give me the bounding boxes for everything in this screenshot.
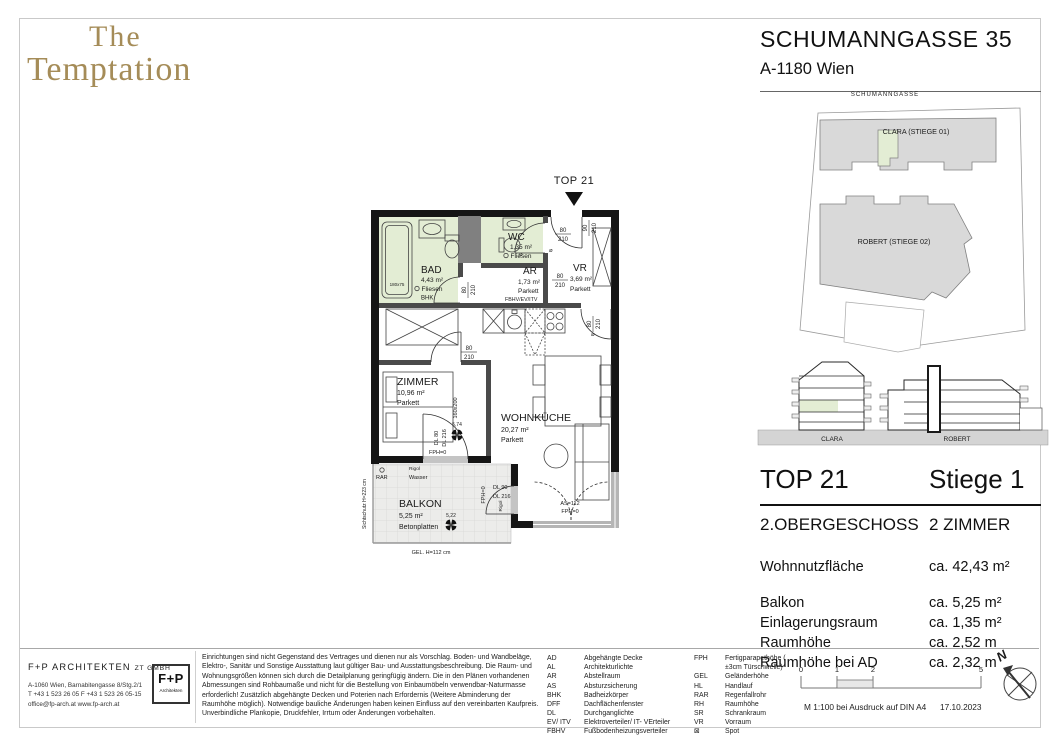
- plan-sheet: The Temptation SCHUMANNGASSE 35 A-1180 W…: [0, 0, 1060, 753]
- brand-line2: Temptation: [27, 53, 191, 88]
- bad-name: BAD: [421, 265, 442, 276]
- bed-size: 160x200: [453, 397, 459, 418]
- bad-note: BHK: [421, 296, 433, 302]
- ar-floor: Parkett: [518, 288, 539, 295]
- legend-abbr: AS: [547, 682, 584, 691]
- wohnkueche-name: WOHNKÜCHE: [501, 412, 571, 424]
- metric-row: Einlagerungsraum ca. 1,35 m²: [760, 615, 1041, 635]
- door-mark-icon: ⌀: [549, 248, 553, 254]
- unit-rooms-label: 2 ZIMMER: [929, 515, 1041, 535]
- scale-tick-5: 5: [979, 665, 983, 674]
- bad-area: 4,43 m²: [421, 277, 444, 284]
- architect-logo-text: F+P: [154, 671, 188, 686]
- compass-n: N: [994, 648, 1010, 665]
- ann-sichtschutz: Sichtschutz H=223 cm: [362, 479, 368, 529]
- robert-label: ROBERT (STIEGE 02): [858, 237, 931, 246]
- street-label: SCHUMANNGASSE: [851, 92, 919, 98]
- vr-name: VR: [573, 263, 587, 274]
- ann-spot1: 5,74: [452, 422, 462, 428]
- legend-abbr: GEL: [694, 672, 725, 681]
- ar-area: 1,73 m²: [518, 279, 541, 286]
- door-mark-icon: ⌀: [519, 252, 523, 258]
- section-robert: [880, 366, 1042, 432]
- legend-desc: Vorraum: [725, 718, 795, 727]
- dim-w: 80: [560, 228, 567, 234]
- legend-abbr: EV/ ITV: [547, 718, 584, 727]
- ann-spot2: 5,22: [446, 513, 456, 519]
- wohnkueche-floor: Parkett: [501, 437, 523, 444]
- legend-abbr: RH: [694, 700, 725, 709]
- room-bad-fill: [379, 216, 458, 305]
- zimmer-name: ZIMMER: [397, 376, 439, 388]
- architect-block: F+P ARCHITEKTEN ZT GMBH A-1060 Wien, Bar…: [28, 660, 150, 710]
- building-robert: [820, 196, 972, 300]
- metric-row: Balkon ca. 5,25 m²: [760, 595, 1041, 615]
- neighbor-building: [844, 302, 924, 352]
- dim-w: 80: [587, 320, 593, 327]
- vr-wardrobe: [593, 228, 611, 286]
- legend-desc: Spot: [725, 727, 795, 736]
- ar-name: AR: [523, 266, 537, 277]
- metric-row: Wohnnutzfläche ca. 42,43 m²: [760, 559, 1041, 579]
- legend-column-1: ADAbgehängte Decke ALArchitekturlichte A…: [547, 654, 692, 737]
- legend-desc: Elektroverteiler/ IT- VErteiler: [584, 718, 692, 727]
- legend-column-2: FPHFertigparapethöhe ( ±3cm Türschwelle)…: [694, 654, 795, 737]
- wohnkueche-area: 20,27 m²: [501, 427, 529, 434]
- dim-h: 210: [471, 284, 477, 295]
- unit-info-panel: TOP 21 Stiege 1 2.OBERGESCHOSS 2 ZIMMER …: [760, 464, 1041, 675]
- architect-phone: T +43 1 523 26 05 F +43 1 523 26 05-15: [28, 690, 150, 700]
- ann-fph0b: FPH=0: [481, 486, 487, 503]
- dim-h: 210: [592, 222, 598, 233]
- legend-abbr: ⊠: [694, 727, 725, 736]
- ann-fph0: FPH=0: [429, 450, 446, 456]
- unit-top-label: TOP 21: [760, 464, 929, 495]
- dim-h: 210: [464, 355, 475, 361]
- architect-address: A-1060 Wien, Barnabitengasse 8/Stg.2/1: [28, 681, 150, 691]
- plan-unit-label: TOP 21: [554, 175, 595, 187]
- brand-logo: The Temptation: [27, 22, 191, 87]
- unit-sub-row: 2.OBERGESCHOSS 2 ZIMMER: [760, 515, 1041, 535]
- legend-abbr: FPH: [694, 654, 725, 672]
- metric-value: ca. 42,43 m²: [929, 559, 1041, 575]
- zimmer-floor: Parkett: [397, 400, 419, 407]
- coffee-table: [544, 444, 568, 468]
- entrance-arrow-icon: [565, 192, 583, 206]
- kitchen-counter: [483, 309, 565, 355]
- unit-floor-label: 2.OBERGESCHOSS: [760, 515, 929, 535]
- architect-name: F+P ARCHITEKTEN ZT GMBH: [28, 660, 150, 675]
- dim-w: 80: [462, 286, 468, 293]
- wc-area: 1,35 m²: [510, 244, 533, 251]
- scale-tick-0: 0: [799, 665, 803, 674]
- scale-note: M 1:100 bei Ausdruck auf DIN A4: [804, 702, 926, 712]
- project-address: A-1180 Wien: [760, 60, 1041, 79]
- ann-fph0c: FPH=0: [561, 509, 578, 515]
- floor-plan: TOP 21: [353, 168, 667, 586]
- ar-note: FBHV/EV/ITV: [505, 297, 538, 303]
- legend-desc: Architekturlichte: [584, 663, 692, 672]
- section-clara: [792, 362, 871, 430]
- section-robert-label: ROBERT: [944, 436, 971, 443]
- ann-rigol2: Rigol: [498, 501, 504, 512]
- legend-abbr: RAR: [694, 691, 725, 700]
- architect-web: office@fp-arch.at www.fp-arch.at: [28, 700, 150, 710]
- scale-tick-2: 2: [871, 665, 875, 674]
- dim-h: 210: [555, 283, 566, 289]
- dim-w: 90: [583, 224, 589, 231]
- ann-rigol1: Rigol: [409, 466, 420, 472]
- unit-stiege-label: Stiege 1: [929, 464, 1041, 495]
- ann-dl216: DL 216: [442, 429, 448, 447]
- tub-size: 180x75: [390, 282, 405, 287]
- wc-name: WC: [508, 232, 525, 243]
- hall-closet: [386, 309, 458, 345]
- clara-label: CLARA (STIEGE 01): [883, 127, 950, 136]
- dim-h: 210: [558, 237, 569, 243]
- metric-value: ca. 5,25 m²: [929, 595, 1041, 611]
- unit-title-row: TOP 21 Stiege 1: [760, 464, 1041, 506]
- legend-abbr: FBHV: [547, 727, 584, 736]
- legend-abbr: BHK: [547, 691, 584, 700]
- architect-logo-sub: Architekten: [154, 688, 188, 693]
- site-plan: SCHUMANNGASSE CLARA (STIEGE 01) ROBERT (…: [786, 86, 1042, 354]
- legend-desc: Fertigparapethöhe ( ±3cm Türschwelle): [725, 654, 795, 672]
- ann-as112: AS=112: [560, 501, 579, 507]
- section-clara-label: CLARA: [821, 436, 843, 443]
- balkon-area: 5,25 m²: [399, 513, 423, 520]
- plan-date: 17.10.2023: [940, 702, 982, 712]
- metric-label: Balkon: [760, 595, 929, 611]
- bad-floor: Fliesen: [422, 286, 443, 293]
- door-mark-icon: ⌀: [591, 332, 595, 338]
- sofa: [575, 424, 609, 500]
- scale-bar: 0 1 2 5: [790, 656, 996, 696]
- vr-area: 3,69 m²: [570, 276, 593, 283]
- brand-line1: The: [89, 22, 191, 53]
- metric-value: ca. 1,35 m²: [929, 615, 1041, 631]
- legend-abbr: DL: [547, 709, 584, 718]
- balcony-fill: [373, 464, 511, 543]
- balkon-floor: Betonplatten: [399, 524, 438, 531]
- legend-abbr: SR: [694, 709, 725, 718]
- legend-abbr: AD: [547, 654, 584, 663]
- disclaimer-text: Einrichtungen sind nicht Gegenstand des …: [202, 653, 540, 719]
- ann-dl90: DL 90: [493, 485, 507, 491]
- legend-desc: Raumhöhe: [725, 700, 795, 709]
- legend-desc: Absturzsicherung: [584, 682, 692, 691]
- legend-desc: Geländerhöhe: [725, 672, 795, 681]
- legend-desc: Handlauf: [725, 682, 795, 691]
- footer-divider: [20, 648, 1039, 649]
- dim-w: 80: [557, 274, 564, 280]
- zimmer-area: 10,96 m²: [397, 390, 425, 397]
- project-header: SCHUMANNGASSE 35 A-1180 Wien: [760, 26, 1041, 92]
- legend-desc: Durchganglichte: [584, 709, 692, 718]
- legend-desc: Regenfallrohr: [725, 691, 795, 700]
- legend-desc: Dachflächenfenster: [584, 700, 692, 709]
- vr-floor: Parkett: [570, 286, 591, 293]
- ann-dl216b: DL 216: [493, 494, 511, 500]
- legend-desc: Schrankraum: [725, 709, 795, 718]
- legend-abbr: VR: [694, 718, 725, 727]
- legend-abbr: AR: [547, 672, 584, 681]
- ann-wasser: Wasser: [409, 475, 428, 481]
- legend-desc: Abgehängte Decke: [584, 654, 692, 663]
- legend-abbr: AL: [547, 663, 584, 672]
- ann-dl80: DL 80: [434, 431, 440, 445]
- legend-abbr: DFF: [547, 700, 584, 709]
- compass: N: [994, 648, 1048, 708]
- scale-tick-1: 1: [835, 665, 839, 674]
- legend-desc: Abstellraum: [584, 672, 692, 681]
- building-sections: CLARA ROBERT: [752, 352, 1052, 452]
- metric-label: Wohnnutzfläche: [760, 559, 929, 575]
- architect-logo: F+P Architekten: [152, 664, 190, 704]
- legend-desc: Badheizkörper: [584, 691, 692, 700]
- ann-rar: RAR: [376, 475, 388, 481]
- legend-desc: Fußbodenheizungsverteiler: [584, 727, 692, 736]
- metric-label: Einlagerungsraum: [760, 615, 929, 631]
- dim-h: 210: [596, 318, 602, 329]
- building-clara: [820, 118, 996, 170]
- ann-gel: GEL. H=112 cm: [412, 550, 451, 556]
- dim-w: 80: [466, 346, 473, 352]
- ground-band: [758, 430, 1048, 445]
- balkon-name: BALKON: [399, 498, 442, 510]
- footer-vertical-divider: [195, 651, 196, 723]
- legend-abbr: HL: [694, 682, 725, 691]
- project-title: SCHUMANNGASSE 35: [760, 26, 1041, 53]
